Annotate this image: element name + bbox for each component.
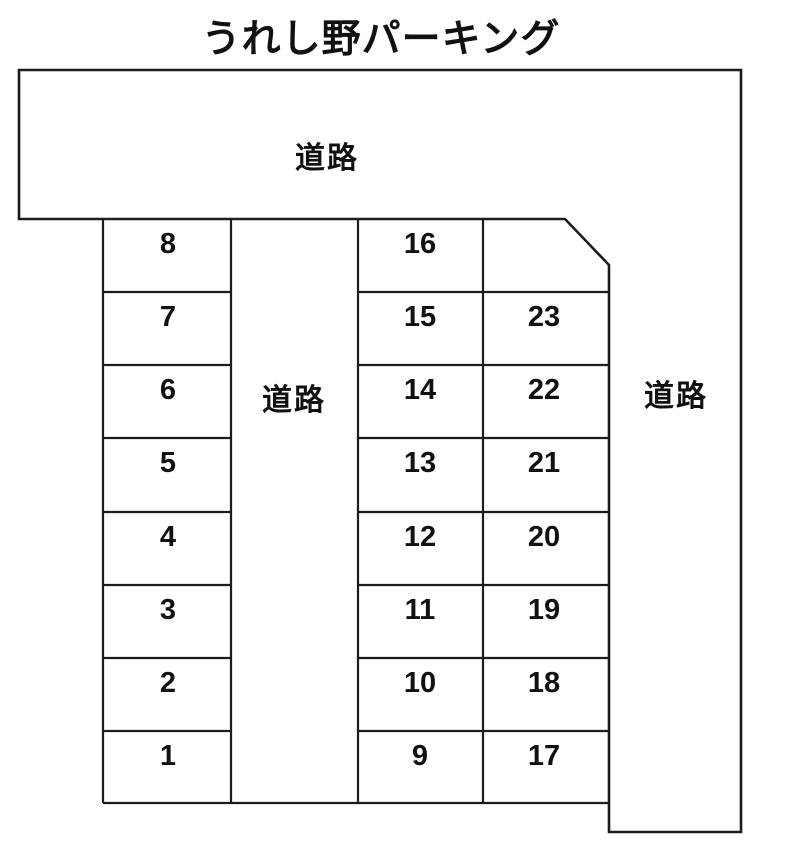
space-label: 12 bbox=[404, 521, 436, 553]
space-label: 6 bbox=[160, 374, 176, 406]
parking-diagram-page: うれし野パーキング bbox=[0, 0, 793, 862]
space-label: 18 bbox=[528, 667, 560, 699]
right-column-grid bbox=[483, 292, 609, 731]
space-label: 13 bbox=[404, 447, 436, 479]
space-label: 4 bbox=[160, 521, 176, 553]
road-label-right: 道路 bbox=[644, 380, 708, 413]
space-label: 21 bbox=[528, 447, 560, 479]
space-label: 1 bbox=[160, 740, 176, 772]
space-label: 8 bbox=[160, 228, 176, 260]
space-label: 7 bbox=[160, 301, 176, 333]
space-label: 3 bbox=[160, 594, 176, 626]
road-boundary bbox=[19, 70, 741, 832]
space-label: 16 bbox=[404, 228, 436, 260]
space-label: 10 bbox=[404, 667, 436, 699]
space-label: 15 bbox=[404, 301, 436, 333]
space-label: 19 bbox=[528, 594, 560, 626]
space-label: 22 bbox=[528, 374, 560, 406]
space-label: 20 bbox=[528, 521, 560, 553]
space-label: 23 bbox=[528, 301, 560, 333]
space-label: 14 bbox=[404, 374, 436, 406]
road-label-top: 道路 bbox=[295, 142, 359, 175]
space-label: 17 bbox=[528, 740, 560, 772]
road-label-middle: 道路 bbox=[262, 384, 326, 417]
space-label: 5 bbox=[160, 447, 176, 479]
space-label: 11 bbox=[405, 594, 436, 626]
space-label: 9 bbox=[412, 740, 428, 772]
space-label: 2 bbox=[160, 667, 176, 699]
parking-map: 道路 道路 道路 8 7 6 5 4 3 2 1 16 15 14 13 12 … bbox=[0, 0, 793, 862]
